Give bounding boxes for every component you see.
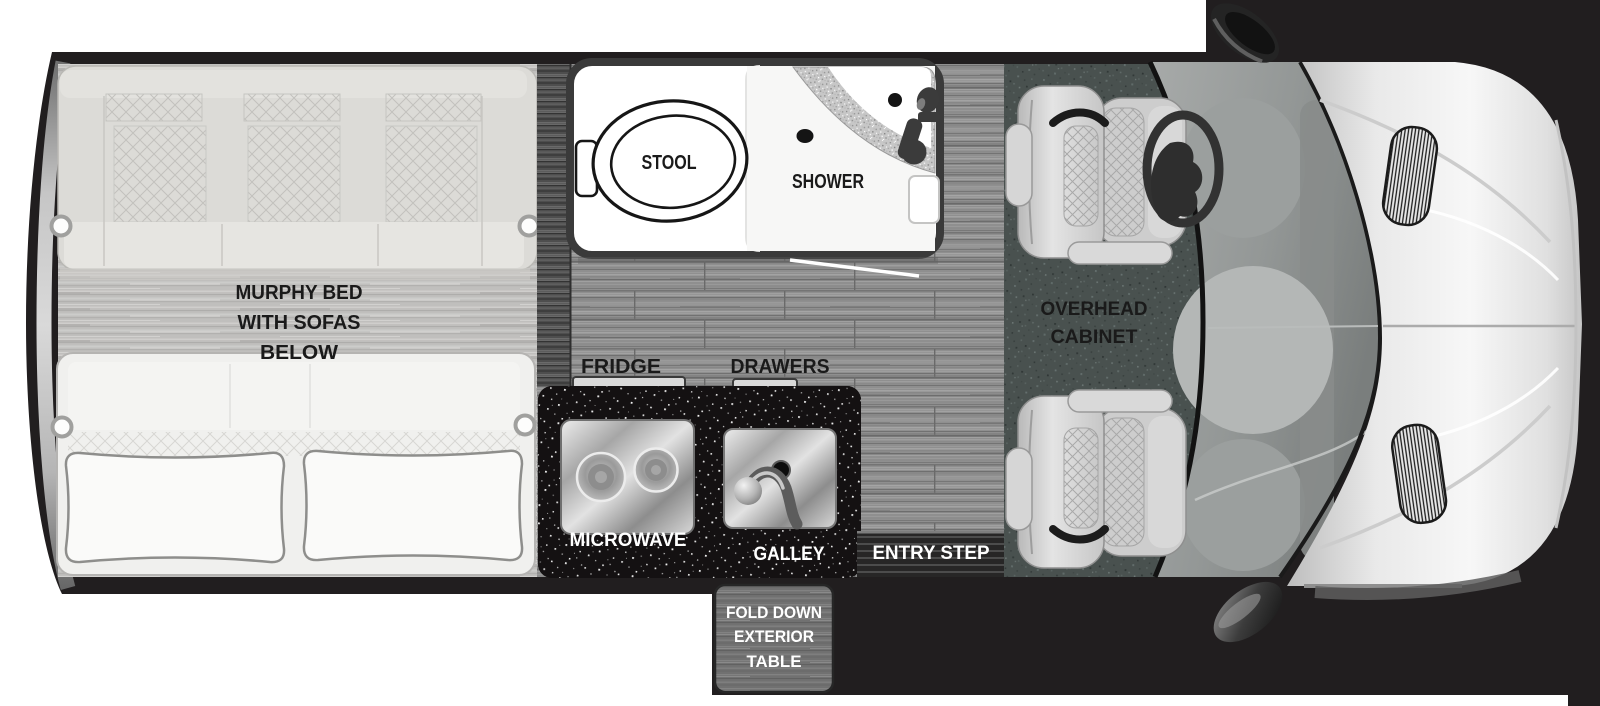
svg-text:STOOL: STOOL — [642, 152, 697, 174]
svg-text:OVERHEAD: OVERHEAD — [1041, 299, 1148, 320]
svg-text:MURPHY BED: MURPHY BED — [236, 282, 363, 304]
svg-text:MICROWAVE: MICROWAVE — [570, 530, 687, 551]
svg-text:FRIDGE: FRIDGE — [581, 356, 661, 378]
svg-text:TABLE: TABLE — [747, 652, 802, 671]
svg-text:ENTRY STEP: ENTRY STEP — [873, 543, 990, 564]
svg-text:EXTERIOR: EXTERIOR — [734, 627, 814, 646]
svg-text:GALLEY: GALLEY — [754, 544, 825, 565]
svg-text:FOLD DOWN: FOLD DOWN — [726, 603, 822, 622]
svg-text:CABINET: CABINET — [1051, 327, 1138, 348]
svg-text:SHOWER: SHOWER — [792, 171, 864, 193]
svg-text:WITH SOFAS: WITH SOFAS — [238, 312, 361, 334]
svg-text:DRAWERS: DRAWERS — [731, 356, 830, 378]
svg-text:BELOW: BELOW — [260, 342, 338, 364]
